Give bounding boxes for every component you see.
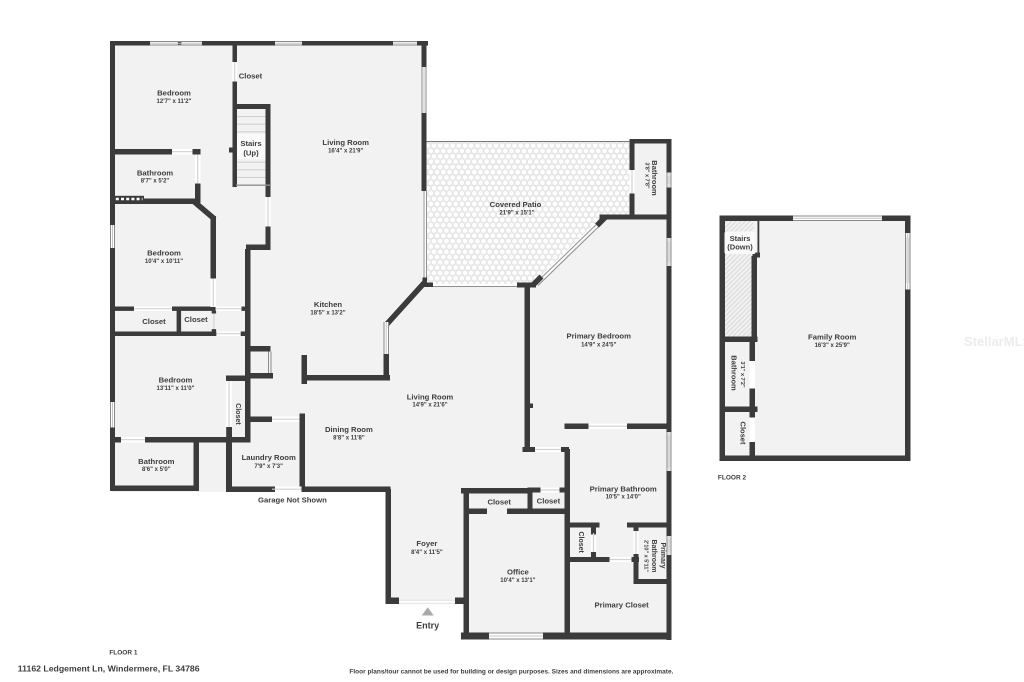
svg-text:Bedroom: Bedroom bbox=[147, 249, 181, 258]
svg-text:21'9" x 15'1": 21'9" x 15'1" bbox=[499, 210, 534, 216]
svg-text:16'3" x 25'9": 16'3" x 25'9" bbox=[815, 343, 850, 349]
svg-text:13'11" x 11'0": 13'11" x 11'0" bbox=[157, 386, 195, 392]
svg-text:7'9" x 7'3": 7'9" x 7'3" bbox=[254, 464, 283, 470]
svg-text:18'5" x 13'2": 18'5" x 13'2" bbox=[310, 311, 345, 317]
svg-text:FLOOR 1: FLOOR 1 bbox=[109, 650, 138, 657]
svg-text:Closet: Closet bbox=[234, 403, 241, 425]
svg-text:Closet: Closet bbox=[487, 497, 511, 506]
svg-text:Laundry Room: Laundry Room bbox=[242, 453, 296, 462]
svg-text:(Down): (Down) bbox=[727, 243, 753, 252]
svg-text:Bedroom: Bedroom bbox=[157, 88, 191, 97]
svg-text:Office: Office bbox=[507, 567, 530, 576]
svg-text:Garage Not Shown: Garage Not Shown bbox=[258, 495, 327, 504]
svg-text:Stairs: Stairs bbox=[240, 139, 261, 148]
svg-text:10'4" x 13'1": 10'4" x 13'1" bbox=[500, 578, 535, 584]
svg-text:8'4" x 11'5": 8'4" x 11'5" bbox=[411, 550, 443, 556]
svg-text:14'9" x 24'5": 14'9" x 24'5" bbox=[581, 343, 616, 349]
svg-text:Primary Bathroom: Primary Bathroom bbox=[590, 484, 657, 493]
svg-text:Closet: Closet bbox=[577, 531, 584, 553]
svg-text:Closet: Closet bbox=[738, 422, 747, 445]
svg-text:14'9" x 21'6": 14'9" x 21'6" bbox=[412, 403, 447, 409]
svg-text:Floor plans/tour cannot be use: Floor plans/tour cannot be used for buil… bbox=[349, 669, 673, 676]
svg-text:StellarMLS: StellarMLS bbox=[964, 334, 1024, 349]
svg-text:Family Room: Family Room bbox=[808, 333, 856, 342]
svg-text:Bathroom: Bathroom bbox=[137, 168, 173, 177]
svg-text:FLOOR 2: FLOOR 2 bbox=[718, 475, 747, 482]
svg-text:Closet: Closet bbox=[239, 71, 263, 80]
svg-text:Primary: Primary bbox=[659, 542, 666, 568]
svg-text:Bathroom: Bathroom bbox=[650, 160, 659, 196]
svg-text:Dining Room: Dining Room bbox=[325, 425, 373, 434]
svg-text:Foyer: Foyer bbox=[416, 539, 437, 548]
svg-text:Bathroom: Bathroom bbox=[729, 355, 738, 391]
svg-text:3'8" x 7'8": 3'8" x 7'8" bbox=[643, 162, 649, 189]
svg-text:11162 Ledgement Ln, Windermere: 11162 Ledgement Ln, Windermere, FL 34786 bbox=[18, 664, 200, 674]
svg-text:2'10" x 5'11": 2'10" x 5'11" bbox=[642, 540, 648, 572]
svg-text:Closet: Closet bbox=[537, 497, 561, 506]
svg-text:Kitchen: Kitchen bbox=[314, 300, 342, 309]
svg-text:(Up): (Up) bbox=[243, 148, 259, 157]
svg-text:Primary Bedroom: Primary Bedroom bbox=[566, 332, 631, 341]
svg-text:Living Room: Living Room bbox=[322, 138, 369, 147]
svg-text:Bathroom: Bathroom bbox=[650, 539, 657, 572]
svg-text:Covered Patio: Covered Patio bbox=[490, 200, 542, 209]
svg-text:10'5" x 14'0": 10'5" x 14'0" bbox=[606, 495, 641, 501]
svg-text:10'4" x 10'11": 10'4" x 10'11" bbox=[145, 259, 183, 265]
svg-text:Closet: Closet bbox=[184, 315, 208, 324]
svg-text:Closet: Closet bbox=[142, 317, 166, 326]
svg-text:3'1" x 7'2": 3'1" x 7'2" bbox=[739, 361, 745, 388]
svg-text:12'7" x 11'2": 12'7" x 11'2" bbox=[157, 99, 192, 105]
svg-text:8'6" x 5'0": 8'6" x 5'0" bbox=[142, 467, 171, 473]
svg-text:Entry: Entry bbox=[416, 620, 439, 630]
svg-text:Bathroom: Bathroom bbox=[138, 457, 174, 466]
svg-text:16'4" x 21'9": 16'4" x 21'9" bbox=[328, 149, 363, 155]
svg-text:8'8" x 11'8": 8'8" x 11'8" bbox=[333, 436, 365, 442]
svg-text:8'7" x 5'2": 8'7" x 5'2" bbox=[141, 179, 170, 185]
svg-text:Bedroom: Bedroom bbox=[159, 375, 193, 384]
svg-text:Primary Closet: Primary Closet bbox=[594, 601, 649, 610]
svg-text:Living Room: Living Room bbox=[407, 392, 454, 401]
